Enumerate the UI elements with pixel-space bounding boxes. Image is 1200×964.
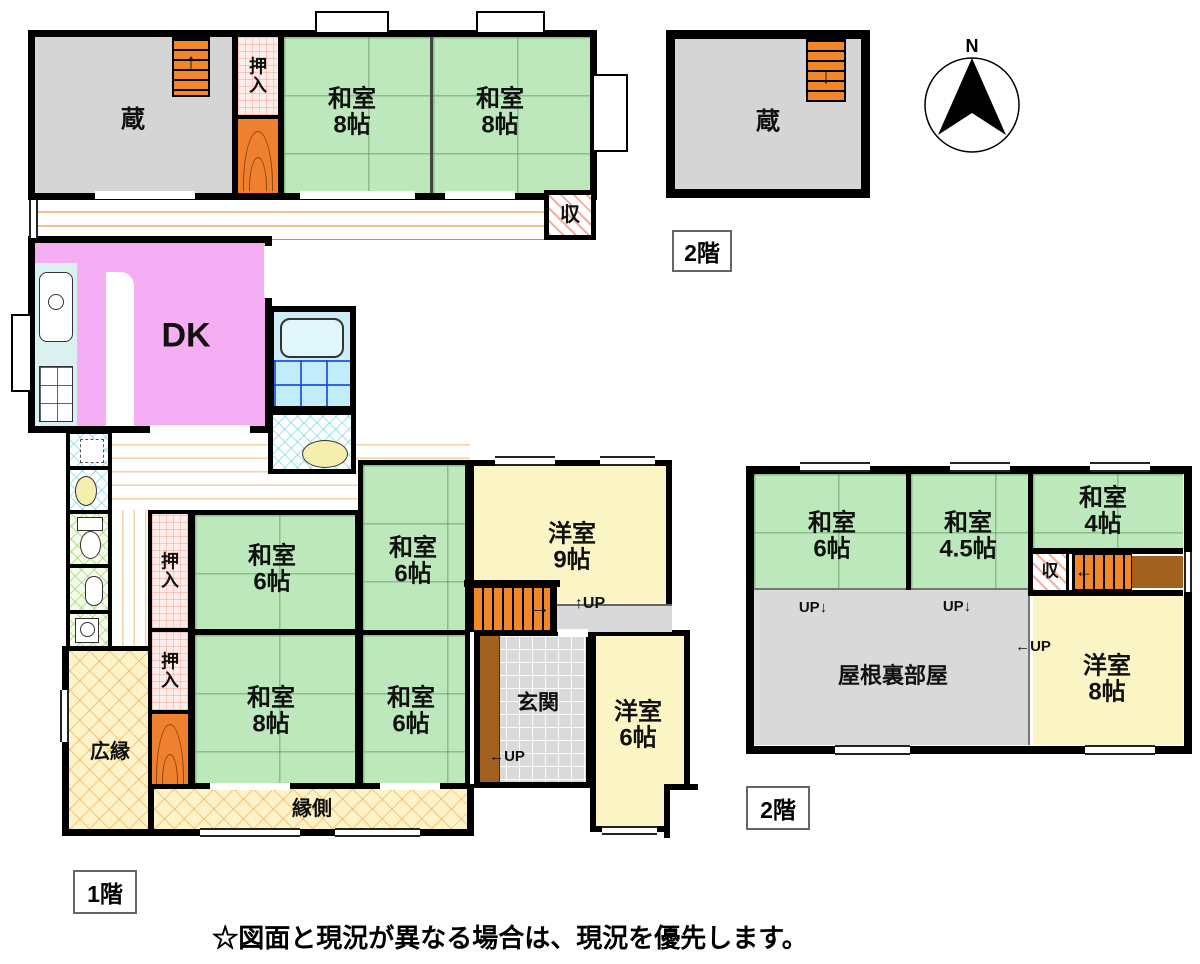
window-bay [594, 74, 628, 152]
floor2-label-box-right: 2階 [746, 786, 810, 830]
window [335, 828, 420, 837]
room-washitsu6-b-label: 和室6帖 [389, 536, 437, 589]
urinal-room [66, 564, 112, 614]
wall [906, 474, 911, 590]
wall [278, 37, 284, 193]
attic-up2-label: UP↓ [943, 599, 971, 616]
room-washitsu8-south-label: 和室8帖 [247, 686, 295, 739]
compass-needle [938, 58, 1006, 135]
veranda-hiroen-label: 広縁 [90, 741, 130, 763]
window-bay [476, 11, 545, 32]
basin-circle [80, 622, 95, 637]
window [835, 745, 910, 755]
closet-oshiire-2-label: 押入 [160, 652, 180, 689]
window [200, 828, 300, 837]
floor1-label-box: 1階 [73, 870, 137, 914]
room-washitsu6-c-label: 和室6帖 [387, 686, 435, 739]
wall [1033, 548, 1183, 554]
compass-n-label: N [966, 36, 979, 56]
room-yoshitsu6-label: 洋室6帖 [614, 700, 662, 753]
door-gap [264, 246, 273, 298]
veranda-engawa-label: 縁側 [292, 798, 332, 820]
room-washitsu4-2f-label: 和室4帖 [1079, 486, 1127, 539]
closet-oshiire-1-label: 押入 [160, 552, 180, 589]
room-yoshitsu9-label: 洋室9帖 [548, 522, 596, 575]
wall [232, 37, 238, 193]
floor2-label-box-top: 2階 [672, 230, 732, 272]
room-attic-label: 屋根裏部屋 [838, 664, 948, 688]
closet-shu-north-label: 収 [560, 204, 580, 226]
window [29, 200, 38, 238]
room-washitsu6-a-label: 和室6帖 [248, 544, 296, 597]
room-yoshitsu8-2f-label: 洋室8帖 [1083, 654, 1131, 707]
room-washitsu8-north-b-label: 和室8帖 [476, 87, 524, 140]
window [800, 462, 870, 472]
closet-shu-2f-label: 収 [1042, 563, 1059, 582]
door-gap [300, 191, 415, 199]
disclaimer-note: ☆図面と現況が異なる場合は、現況を優先します。 [110, 918, 910, 955]
bathroom-tile-floor [274, 360, 350, 406]
attic-up1-label: UP↓ [799, 600, 827, 617]
washstand-basin [75, 476, 97, 506]
genkan-up-label: ←UP [489, 749, 525, 766]
wall [1028, 474, 1033, 590]
kitchen-stove [39, 366, 73, 422]
window [600, 456, 655, 466]
window [1184, 552, 1192, 592]
room-washitsu45-2f-label: 和室4.5帖 [939, 511, 996, 564]
washbasin [302, 440, 348, 468]
tokonoma-south [148, 710, 192, 790]
room-dk-label: DK [161, 317, 210, 354]
stairs-up-label: ↑UP [575, 595, 605, 613]
notch [664, 784, 698, 838]
compass: N [915, 33, 1030, 158]
window-bay [315, 11, 389, 32]
washstand-room [66, 466, 112, 514]
door-gap [95, 191, 195, 199]
toilet-bowl [80, 531, 101, 559]
stairs-up-arrow: ↑ [186, 50, 197, 74]
partition [430, 37, 433, 193]
door-gap [445, 191, 515, 199]
room-kura-2f-label: 蔵 [756, 109, 780, 135]
wall [1028, 590, 1183, 596]
dk-counter-island [106, 272, 134, 426]
stairs-2f-arrow: ← [1075, 562, 1093, 582]
partition [754, 588, 1028, 590]
floor-hatch-square [80, 439, 104, 463]
window [60, 690, 69, 742]
closet-oshiire-north-label: 押入 [248, 57, 268, 94]
door-gap [210, 783, 290, 790]
window [1085, 745, 1155, 755]
wall [464, 580, 560, 587]
window-bay [11, 314, 30, 392]
bathtub [280, 318, 344, 358]
door-gap [558, 629, 588, 637]
entrance-genkan-label: 玄関 [517, 691, 559, 714]
stair-landing-2f [1132, 556, 1183, 588]
tokonoma-north [238, 115, 278, 193]
window [950, 462, 1010, 472]
partition [1028, 596, 1030, 745]
room-washitsu8-north-a-label: 和室8帖 [328, 87, 376, 140]
stairs-1f-arrow: → [530, 597, 550, 619]
toilet-tank [77, 517, 103, 531]
utility-cell-2 [66, 610, 112, 650]
kitchen-faucet [48, 294, 64, 310]
stairs-down-arrow: ↓ [821, 64, 832, 88]
urinal [85, 576, 103, 606]
window [602, 826, 657, 835]
wall [550, 586, 557, 632]
door-gap [150, 425, 250, 434]
yoshitsu8-up-label: ←UP [1015, 639, 1051, 656]
room-washitsu6-2f-label: 和室6帖 [808, 511, 856, 564]
window [495, 456, 555, 466]
room-kura-1f-label: 蔵 [121, 107, 145, 133]
floor-plan: ↑ 押入 和室8帖 和室8帖 収 DK [0, 0, 1200, 964]
compass-rose: N [915, 33, 1030, 158]
toilet-room [66, 510, 112, 568]
corridor-north [30, 198, 546, 240]
utility-cell [66, 430, 112, 470]
window [1090, 462, 1150, 472]
door-gap [380, 783, 440, 790]
